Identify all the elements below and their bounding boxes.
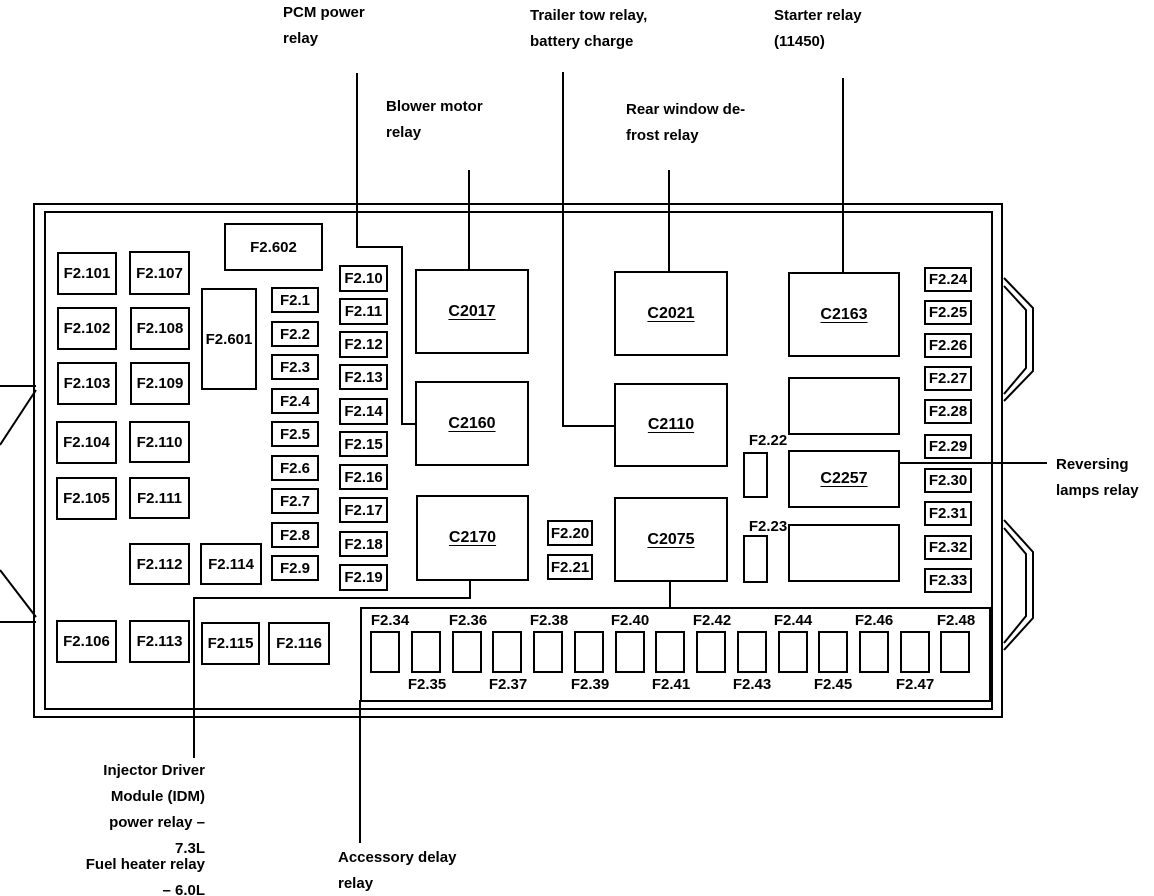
fuse-slot-F2.43 <box>737 631 767 673</box>
label-line: relay <box>386 120 483 146</box>
box-label: F2.115 <box>208 635 254 652</box>
connector-C2170: C2170 <box>416 495 529 581</box>
fuse-F2.4: F2.4 <box>271 388 319 414</box>
fuse-F2.17: F2.17 <box>339 497 388 523</box>
fuse-slot-F2.36 <box>452 631 482 673</box>
fuse-F2.105: F2.105 <box>56 477 117 520</box>
right-tab-1-inner <box>1004 286 1026 394</box>
left-tab-bottom-diagonal <box>0 570 36 617</box>
fuse-label-F2.34: F2.34 <box>371 612 409 629</box>
fuse-F2.32: F2.32 <box>924 535 972 560</box>
fuse-F2.19: F2.19 <box>339 564 388 591</box>
connector-C2163: C2163 <box>788 272 900 357</box>
box-label: F2.5 <box>280 426 310 443</box>
fuse-F2.25: F2.25 <box>924 300 972 325</box>
box-label: F2.1 <box>280 292 310 309</box>
box-label: F2.29 <box>929 438 967 455</box>
fuse-F2.102: F2.102 <box>57 307 117 350</box>
label-line: power relay – <box>60 810 205 836</box>
box-label: F2.11 <box>345 303 383 320</box>
box-label: F2.25 <box>929 304 967 321</box>
left-tab-top-diagonal <box>0 390 36 445</box>
label-idm-power-relay: Injector DriverModule (IDM)power relay –… <box>60 758 205 862</box>
box-label: F2.33 <box>929 572 967 589</box>
fuse-slot-F2.45 <box>818 631 848 673</box>
fuse-F2.31: F2.31 <box>924 501 972 526</box>
fuse-F2.109: F2.109 <box>130 362 190 405</box>
fuse-slot-F2.37 <box>492 631 522 673</box>
box-label: F2.14 <box>344 403 382 420</box>
blank-box-1 <box>788 377 900 435</box>
box-label: F2.27 <box>929 370 967 387</box>
box-label: F2.103 <box>64 375 111 392</box>
fuse-F2.6: F2.6 <box>271 455 319 481</box>
fuse-slot-F2.42 <box>696 631 726 673</box>
fuse-F2.115: F2.115 <box>201 622 260 665</box>
fuse-F2.114: F2.114 <box>200 543 262 585</box>
fuse-label-F2.43: F2.43 <box>733 676 771 693</box>
fuse-F2.2: F2.2 <box>271 321 319 347</box>
fuse-F2.116: F2.116 <box>268 622 330 665</box>
fuse-label-F2.23: F2.23 <box>749 518 787 535</box>
box-label: F2.21 <box>551 559 589 576</box>
box-label: C2170 <box>449 529 496 547</box>
box-label: F2.109 <box>137 375 184 392</box>
connector-C2021: C2021 <box>614 271 728 356</box>
fuse-F2.26: F2.26 <box>924 333 972 358</box>
label-line: Injector Driver <box>60 758 205 784</box>
fuse-F2.13: F2.13 <box>339 364 388 390</box>
fuse-F2.3: F2.3 <box>271 354 319 380</box>
fuse-slot-F2.46 <box>859 631 889 673</box>
box-label: F2.8 <box>280 527 310 544</box>
fuse-label-F2.40: F2.40 <box>611 612 649 629</box>
label-line: Blower motor <box>386 94 483 120</box>
connector-C2110: C2110 <box>614 383 728 467</box>
connector-C2160: C2160 <box>415 381 529 466</box>
label-line: PCM power <box>283 0 365 26</box>
fuse-F2.112: F2.112 <box>129 543 190 585</box>
fuse-F2.7: F2.7 <box>271 488 319 514</box>
fuse-slot-F2.41 <box>655 631 685 673</box>
label-line: relay <box>283 26 365 52</box>
fuse-F2.16: F2.16 <box>339 464 388 490</box>
fuse-F2.5: F2.5 <box>271 421 319 447</box>
box-label: F2.3 <box>280 359 310 376</box>
box-label: F2.12 <box>344 336 382 353</box>
fuse-F2.101: F2.101 <box>57 252 117 295</box>
box-label: F2.16 <box>344 469 382 486</box>
box-label: F2.13 <box>344 369 382 386</box>
box-label: F2.110 <box>137 434 183 451</box>
box-label: F2.106 <box>63 633 110 650</box>
fuse-slot-F2.38 <box>533 631 563 673</box>
box-label: F2.104 <box>63 434 110 451</box>
box-label: F2.20 <box>551 525 589 542</box>
connector-C2257: C2257 <box>788 450 900 508</box>
fuse-F2.107: F2.107 <box>129 251 190 295</box>
box-label: F2.107 <box>136 265 183 282</box>
fuse-F2.18: F2.18 <box>339 531 388 557</box>
box-label: F2.15 <box>344 436 382 453</box>
box-label: C2017 <box>448 303 495 321</box>
fuse-F2.1: F2.1 <box>271 287 319 313</box>
label-trailer-tow-relay: Trailer tow relay,battery charge <box>530 3 647 55</box>
label-line: (11450) <box>774 29 862 55</box>
fuse-F2.10: F2.10 <box>339 265 388 292</box>
label-line: Trailer tow relay, <box>530 3 647 29</box>
fuse-box-F2.22 <box>743 452 768 498</box>
label-line: relay <box>338 871 456 896</box>
box-label: F2.108 <box>137 320 184 337</box>
box-label: F2.19 <box>344 569 382 586</box>
label-starter-relay: Starter relay(11450) <box>774 3 862 55</box>
box-label: F2.26 <box>929 337 967 354</box>
fuse-F2.24: F2.24 <box>924 267 972 292</box>
label-line: Module (IDM) <box>60 784 205 810</box>
fuse-F2.104: F2.104 <box>56 421 117 464</box>
fuse-slot-F2.40 <box>615 631 645 673</box>
fuse-F2.33: F2.33 <box>924 568 972 593</box>
right-tab-2-outer <box>1004 520 1033 650</box>
fuse-label-F2.39: F2.39 <box>571 676 609 693</box>
fuse-F2.111: F2.111 <box>129 477 190 519</box>
fuse-F2.20: F2.20 <box>547 520 593 546</box>
fuse-label-F2.36: F2.36 <box>449 612 487 629</box>
fuse-box-F2.23 <box>743 535 768 583</box>
box-label: C2257 <box>820 470 867 488</box>
box-label: F2.30 <box>929 472 967 489</box>
fuse-F2.602: F2.602 <box>224 223 323 271</box>
fuse-label-F2.41: F2.41 <box>652 676 690 693</box>
box-label: F2.18 <box>344 536 382 553</box>
box-label: F2.32 <box>929 539 967 556</box>
fuse-F2.27: F2.27 <box>924 366 972 391</box>
box-label: F2.105 <box>63 490 110 507</box>
box-label: F2.101 <box>64 265 111 282</box>
fuse-slot-F2.44 <box>778 631 808 673</box>
connector-C2017: C2017 <box>415 269 529 354</box>
fuse-label-F2.42: F2.42 <box>693 612 731 629</box>
fuse-F2.110: F2.110 <box>129 421 190 463</box>
right-tab-2-inner <box>1004 528 1026 643</box>
box-label: F2.28 <box>929 403 967 420</box>
label-line: Reversing <box>1056 452 1139 478</box>
box-label: F2.602 <box>250 239 297 256</box>
label-line: Fuel heater relay <box>60 852 205 878</box>
fuse-label-F2.47: F2.47 <box>896 676 934 693</box>
fuse-label-F2.35: F2.35 <box>408 676 446 693</box>
box-label: F2.112 <box>137 556 183 573</box>
box-label: F2.111 <box>137 490 182 507</box>
label-accessory-delay-relay: Accessory delayrelay <box>338 845 456 896</box>
box-label: F2.114 <box>208 556 254 573</box>
label-line: frost relay <box>626 123 745 149</box>
fuse-slot-F2.47 <box>900 631 930 673</box>
box-label: C2160 <box>448 415 495 433</box>
fuse-slot-F2.48 <box>940 631 970 673</box>
box-label: F2.116 <box>276 635 322 652</box>
fuse-F2.28: F2.28 <box>924 399 972 424</box>
connector-C2075: C2075 <box>614 497 728 582</box>
box-label: F2.601 <box>206 331 253 348</box>
fuse-label-F2.22: F2.22 <box>749 432 787 449</box>
fuse-slot-F2.35 <box>411 631 441 673</box>
fuse-F2.108: F2.108 <box>130 307 190 350</box>
box-label: F2.7 <box>280 493 310 510</box>
fuse-label-F2.45: F2.45 <box>814 676 852 693</box>
label-line: Accessory delay <box>338 845 456 871</box>
box-label: F2.9 <box>280 560 310 577</box>
box-label: F2.2 <box>280 326 310 343</box>
box-label: F2.6 <box>280 460 310 477</box>
fuse-box-diagram: F2.101F2.102F2.103F2.104F2.105F2.106F2.1… <box>0 0 1154 896</box>
fuse-F2.14: F2.14 <box>339 398 388 425</box>
box-label: F2.31 <box>929 505 967 522</box>
fuse-F2.15: F2.15 <box>339 431 388 457</box>
box-label: F2.113 <box>137 633 183 650</box>
box-label: F2.4 <box>280 393 310 410</box>
box-label: C2021 <box>647 305 694 323</box>
fuse-F2.29: F2.29 <box>924 434 972 459</box>
box-label: F2.17 <box>344 502 382 519</box>
fuse-F2.11: F2.11 <box>339 298 388 325</box>
fuse-F2.106: F2.106 <box>56 620 117 663</box>
fuse-label-F2.44: F2.44 <box>774 612 812 629</box>
box-label: F2.24 <box>929 271 967 288</box>
label-pcm-power-relay: PCM powerrelay <box>283 0 365 52</box>
fuse-label-F2.38: F2.38 <box>530 612 568 629</box>
fuse-F2.9: F2.9 <box>271 555 319 581</box>
fuse-label-F2.37: F2.37 <box>489 676 527 693</box>
box-label: C2075 <box>647 531 694 549</box>
box-label: F2.10 <box>344 270 382 287</box>
fuse-F2.103: F2.103 <box>57 362 117 405</box>
blank-box-2 <box>788 524 900 582</box>
label-reversing-lamps-relay: Reversinglamps relay <box>1056 452 1139 504</box>
box-label: C2163 <box>820 306 867 324</box>
label-blower-motor-relay: Blower motorrelay <box>386 94 483 146</box>
fuse-F2.113: F2.113 <box>129 620 190 663</box>
label-fuel-heater-relay: Fuel heater relay– 6.0L <box>60 852 205 896</box>
label-line: lamps relay <box>1056 478 1139 504</box>
box-label: C2110 <box>648 416 694 434</box>
fuse-F2.21: F2.21 <box>547 554 593 580</box>
right-tab-1-outer <box>1004 278 1033 401</box>
label-rear-window-defrost-relay: Rear window de-frost relay <box>626 97 745 149</box>
fuse-F2.8: F2.8 <box>271 522 319 548</box>
fuse-slot-F2.39 <box>574 631 604 673</box>
fuse-label-F2.46: F2.46 <box>855 612 893 629</box>
fuse-label-F2.48: F2.48 <box>937 612 975 629</box>
fuse-F2.12: F2.12 <box>339 331 388 358</box>
label-line: Rear window de- <box>626 97 745 123</box>
label-line: – 6.0L <box>60 878 205 896</box>
fuse-F2.601: F2.601 <box>201 288 257 390</box>
fuse-F2.30: F2.30 <box>924 468 972 493</box>
label-line: Starter relay <box>774 3 862 29</box>
label-line: battery charge <box>530 29 647 55</box>
box-label: F2.102 <box>64 320 111 337</box>
fuse-slot-F2.34 <box>370 631 400 673</box>
